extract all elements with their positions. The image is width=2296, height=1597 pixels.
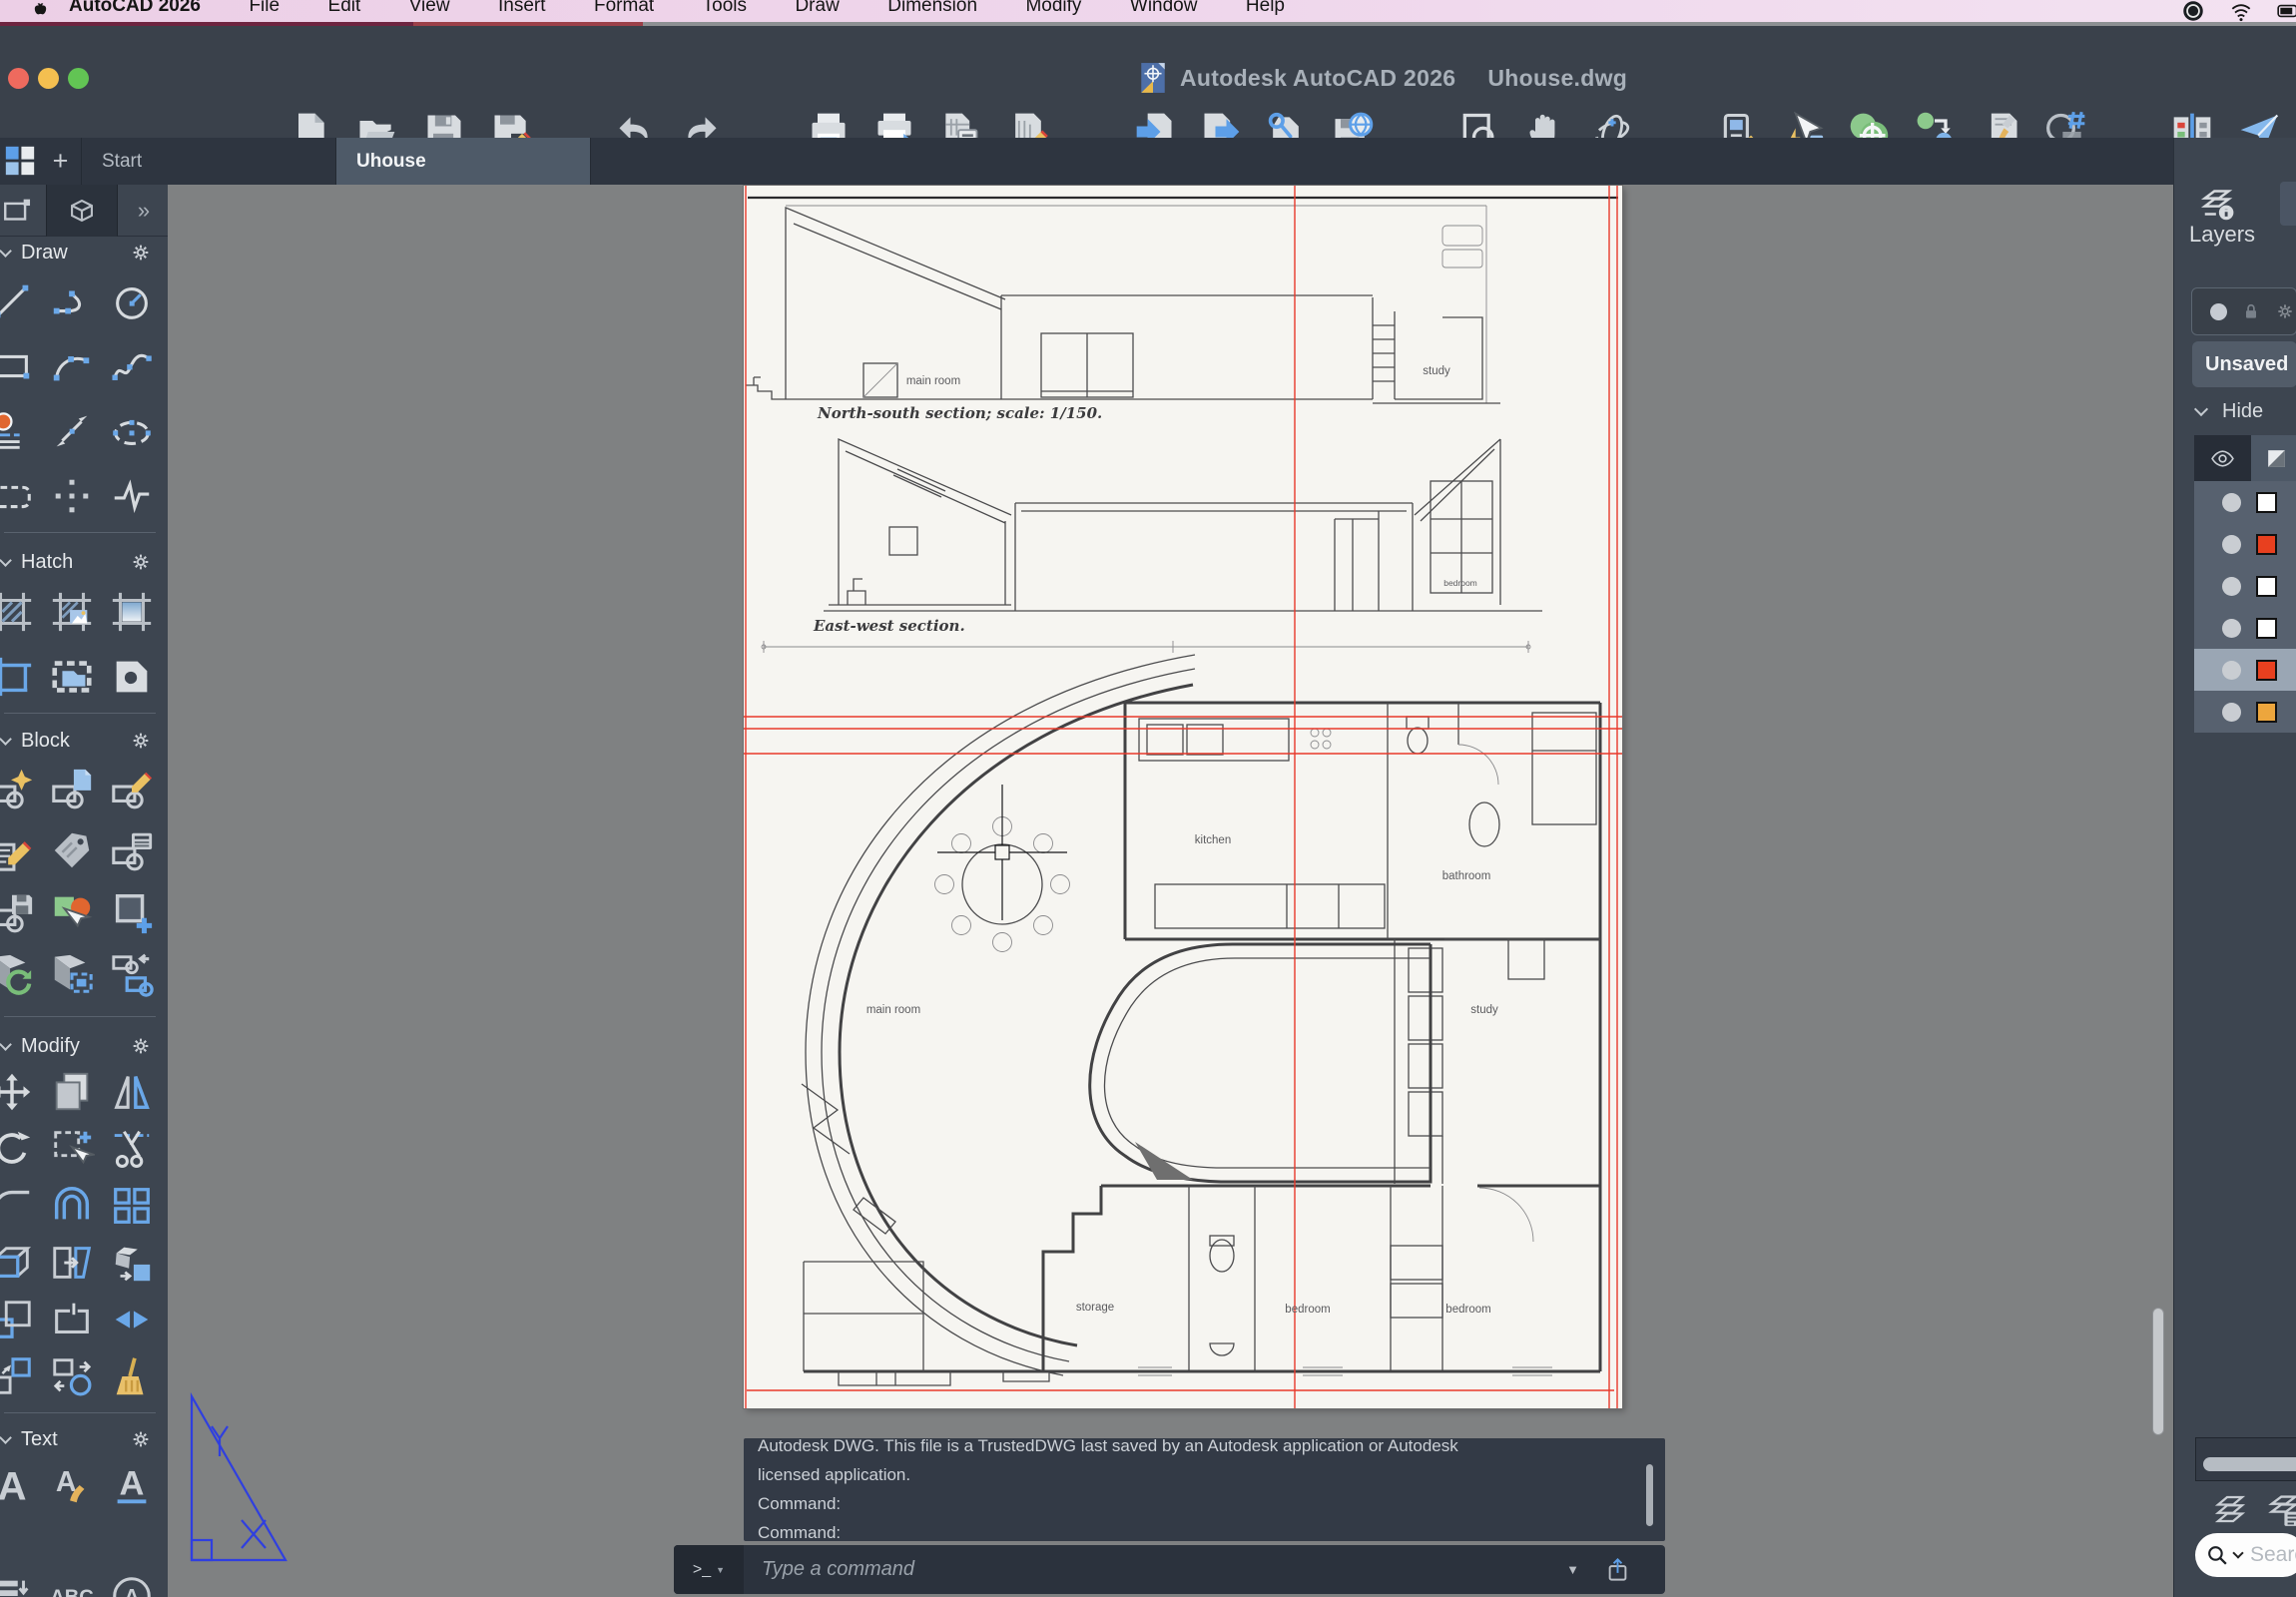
menu-item[interactable]: Help [1224, 0, 1307, 16]
layers-icon [2200, 186, 2238, 224]
layer-color-swatch[interactable] [2256, 702, 2277, 723]
command-line-bar[interactable]: >_ ▼ Type a command ▼ [674, 1545, 1665, 1594]
search-placeholder: Search [2250, 1543, 2296, 1567]
hide-section-toggle[interactable]: Hide [2196, 395, 2263, 427]
room-label: bedroom [1285, 1304, 1330, 1316]
trim-tool[interactable] [109, 1126, 155, 1172]
circle-tool[interactable] [109, 278, 155, 324]
battery-icon[interactable] [2276, 0, 2296, 22]
visibility-column-header[interactable] [2194, 435, 2251, 481]
layers-panel: Layers Unsaved Hide [2173, 138, 2296, 1597]
tool-icon [109, 278, 155, 324]
hatch-edit-tool[interactable] [49, 654, 95, 700]
copy-objects-tool[interactable] [109, 1240, 155, 1286]
tool-icon [109, 1462, 155, 1508]
tool-icon [0, 1462, 35, 1508]
scale-tool[interactable] [0, 1297, 35, 1342]
stretch-tool[interactable] [49, 1126, 95, 1172]
layer-settings-icon[interactable] [2267, 1491, 2296, 1529]
text-circle-tool[interactable] [109, 1573, 155, 1597]
menu-item[interactable]: File [227, 0, 301, 16]
gear-icon[interactable] [130, 551, 152, 573]
tool-icon [109, 1126, 155, 1172]
tool-icon [0, 1297, 35, 1342]
room-label: storage [1076, 1302, 1114, 1314]
close-window-button[interactable] [8, 68, 29, 89]
tool-icon [0, 889, 35, 935]
layer-state-dropdown[interactable]: Unsaved [2192, 341, 2296, 387]
tool-icon [49, 278, 95, 324]
tool-icon [109, 1240, 155, 1286]
chevron-down-icon [2232, 1547, 2243, 1558]
panel-title: Hatch [21, 551, 73, 574]
tool-palette-sidebar: » Draw Hatch Block Mod [0, 185, 168, 1597]
select-objects-tool[interactable] [49, 889, 95, 935]
copy-tool[interactable] [49, 1069, 95, 1115]
room-label: main room [906, 375, 960, 387]
room-label: bedroom [1443, 578, 1477, 588]
menu-item[interactable]: View [387, 0, 472, 16]
insert-block-tool[interactable] [0, 766, 35, 811]
chevron-down-icon [0, 733, 12, 746]
layers-panel-title: Layers [2189, 222, 2255, 248]
hatch-tool[interactable] [0, 589, 35, 635]
layer-row[interactable] [2194, 649, 2296, 691]
panel-divider [4, 532, 156, 533]
app-title: Autodesk AutoCAD 2026 [1180, 65, 1455, 92]
document-title: Uhouse.dwg [1487, 65, 1627, 92]
eye-icon [2210, 446, 2235, 471]
tool-icon [49, 1573, 95, 1597]
room-label: bathroom [1442, 870, 1491, 882]
panel-divider [4, 1412, 156, 1413]
layer-row[interactable] [2194, 481, 2296, 523]
tool-icon [109, 1069, 155, 1115]
command-history-line: Command: [758, 1518, 1651, 1541]
tool-icon [0, 278, 35, 324]
layer-color-swatch[interactable] [2256, 576, 2277, 597]
hatch-panel-header[interactable]: Hatch [0, 547, 168, 577]
tool-icon [49, 343, 95, 389]
layer-visibility-dot[interactable] [2222, 619, 2241, 638]
layer-list [2194, 435, 2296, 733]
revision-cloud-tool[interactable] [0, 473, 35, 519]
purge-tool[interactable] [109, 1353, 155, 1399]
tool-icon [0, 1126, 35, 1172]
prompt-glyph: >_ [693, 1561, 711, 1579]
spline-tool[interactable] [109, 343, 155, 389]
room-label: main room [866, 1004, 920, 1016]
tool-icon [109, 1573, 155, 1597]
layer-visibility-dot[interactable] [2222, 493, 2241, 512]
command-input[interactable]: Type a command [762, 1558, 914, 1581]
zoom-window-button[interactable] [68, 68, 89, 89]
boundary-tool[interactable] [0, 654, 35, 700]
swatch-icon [2264, 446, 2289, 471]
command-history-line: Autodesk DWG. This file is a TrustedDWG … [758, 1438, 1651, 1460]
section-caption: North-south section; scale: 1/150. [818, 404, 1102, 422]
layer-search-box[interactable]: Search [2195, 1533, 2296, 1577]
tool-icon [0, 951, 35, 997]
tool-icon [0, 1573, 35, 1597]
autocad-window: AutoCAD 2026 File Edit View Insert Forma… [0, 0, 2296, 1597]
tab-2d-tools[interactable] [0, 185, 46, 237]
multiline-tool[interactable] [0, 408, 35, 454]
3d-box-tool[interactable] [0, 1240, 35, 1286]
text-list-tool[interactable] [0, 1573, 35, 1597]
gradient-tool[interactable] [109, 589, 155, 635]
wifi-icon[interactable] [2228, 0, 2254, 22]
measure-tool[interactable] [49, 408, 95, 454]
tab-uhouse[interactable]: Uhouse [336, 138, 591, 185]
menu-item[interactable]: Draw [773, 0, 861, 16]
drawing-canvas[interactable]: main room study bedroom kitchen bathroom… [168, 185, 2173, 1597]
tool-icon [109, 473, 155, 519]
layer-visibility-dot[interactable] [2222, 535, 2241, 554]
array-tool[interactable] [109, 1183, 155, 1229]
gear-icon[interactable] [130, 730, 152, 752]
paper-sheet[interactable]: main room study bedroom kitchen bathroom… [744, 186, 1622, 1408]
tool-icon [49, 766, 95, 811]
tool-icon [109, 589, 155, 635]
gear-icon[interactable] [130, 1035, 152, 1057]
convert-tool[interactable] [49, 1353, 95, 1399]
section-caption: East-west section. [814, 617, 965, 635]
new-drawing-tab-button[interactable]: + [40, 138, 82, 185]
menu-item[interactable]: Dimension [865, 0, 999, 16]
block-panel-header[interactable]: Block [0, 726, 168, 756]
layer-filter-toolbar [2191, 287, 2296, 335]
room-label: study [1470, 1004, 1498, 1016]
tool-icon [49, 827, 95, 873]
tool-icon [109, 1297, 155, 1342]
lock-icon[interactable] [2241, 301, 2261, 321]
superhatch-tool[interactable] [49, 589, 95, 635]
color-column-header[interactable] [2251, 435, 2296, 481]
tool-icon [0, 589, 35, 635]
tool-icon [0, 827, 35, 873]
viewport-icon [1, 194, 35, 228]
room-label: bedroom [1445, 1304, 1490, 1316]
command-history-line: Command: [758, 1489, 1651, 1518]
mtext-tool[interactable] [0, 1462, 35, 1508]
chevron-down-icon [0, 554, 12, 567]
room-label: study [1423, 365, 1450, 377]
line-tool[interactable] [0, 278, 35, 324]
tool-icon [49, 589, 95, 635]
macos-menu-bar: AutoCAD 2026 File Edit View Insert Forma… [0, 0, 2296, 22]
tab-start[interactable]: Start [82, 138, 336, 185]
layer-row[interactable] [2194, 607, 2296, 649]
polyline-tool[interactable] [49, 278, 95, 324]
menu-item[interactable]: Window [1108, 0, 1220, 16]
tool-icon [0, 1240, 35, 1286]
tool-icon [49, 1297, 95, 1342]
text-panel-header[interactable]: Text [0, 1424, 168, 1454]
chevron-down-icon [2194, 401, 2208, 415]
cube-icon [65, 194, 99, 228]
edit-attribute-tool[interactable] [0, 827, 35, 873]
minimize-window-button[interactable] [38, 68, 59, 89]
tool-icon [49, 1462, 95, 1508]
panel-edge-tab[interactable] [2280, 182, 2296, 226]
tag-tool[interactable] [49, 827, 95, 873]
spell-check-tool[interactable] [49, 1573, 95, 1597]
swap-block-tool[interactable] [109, 951, 155, 997]
add-selected-tool[interactable] [109, 889, 155, 935]
arc-tool[interactable] [49, 343, 95, 389]
layer-visibility-dot[interactable] [2222, 577, 2241, 596]
rectangle-tool[interactable] [0, 343, 35, 389]
menu-item[interactable]: Format [572, 0, 676, 16]
tool-icon [109, 654, 155, 700]
tool-icon [109, 1183, 155, 1229]
menu-item[interactable]: Edit [306, 0, 383, 16]
draw-panel-header[interactable]: Draw [0, 238, 168, 267]
tool-icon [109, 827, 155, 873]
write-block-tool[interactable] [0, 889, 35, 935]
canvas-vertical-scrollbar[interactable] [2152, 1308, 2164, 1435]
create-block-tool[interactable] [49, 766, 95, 811]
offset-tool[interactable] [49, 1183, 95, 1229]
tool-icon [109, 766, 155, 811]
change-space-tool[interactable] [49, 1240, 95, 1286]
layer-visibility-dot[interactable] [2222, 703, 2241, 722]
hide-label: Hide [2222, 400, 2263, 423]
layer-states-icon[interactable] [2212, 1491, 2248, 1527]
solid-fill-tool[interactable] [109, 654, 155, 700]
history-scrollbar[interactable] [1646, 1464, 1653, 1526]
layer-list-header [2194, 435, 2296, 481]
ucs-icon: Y X [182, 1390, 296, 1568]
freehand-tool[interactable] [109, 473, 155, 519]
tool-icon [49, 1240, 95, 1286]
search-icon [2205, 1543, 2230, 1568]
tool-icon [49, 1353, 95, 1399]
tab-overview-icon[interactable] [3, 144, 37, 178]
layer-row[interactable] [2194, 565, 2296, 607]
tool-icon [0, 1183, 35, 1229]
construction-lines [744, 186, 1622, 1408]
menu-item[interactable]: Modify [1003, 0, 1103, 16]
drawing-tab-bar: + Start Uhouse [0, 138, 2296, 185]
tool-icon [49, 951, 95, 997]
tool-icon [49, 1069, 95, 1115]
autocad-app-icon [1140, 62, 1166, 94]
text-style-tool[interactable] [49, 1462, 95, 1508]
tool-icon [109, 1353, 155, 1399]
layer-status-icon[interactable] [2210, 303, 2227, 320]
menu-item[interactable]: AutoCAD 2026 [65, 0, 223, 16]
tool-icon [109, 408, 155, 454]
tool-icon [49, 1183, 95, 1229]
tool-icon [0, 408, 35, 454]
sidebar-overflow-button[interactable]: » [118, 185, 168, 237]
panel-divider [4, 713, 156, 714]
uhouse-drawing [744, 186, 1622, 1408]
chevron-down-icon: ▼ [716, 1565, 725, 1575]
point-tool[interactable] [49, 473, 95, 519]
layer-panel-scrollbar[interactable] [2195, 1437, 2296, 1481]
menu-item[interactable]: Tools [681, 0, 769, 16]
layer-visibility-dot[interactable] [2222, 661, 2241, 680]
join-tool[interactable] [109, 1297, 155, 1342]
tool-icon [109, 889, 155, 935]
tool-icon [49, 408, 95, 454]
layer-row[interactable] [2194, 691, 2296, 733]
layer-color-swatch[interactable] [2256, 618, 2277, 639]
gear-icon[interactable] [130, 1428, 152, 1450]
command-history-line: licensed application. [758, 1460, 1651, 1489]
room-label: kitchen [1195, 834, 1231, 846]
tool-icon [0, 766, 35, 811]
tool-icon [0, 1353, 35, 1399]
crosshair-cursor [937, 785, 1067, 920]
block-editor-tool[interactable] [109, 766, 155, 811]
tool-icon [49, 654, 95, 700]
ellipse-tool[interactable] [109, 408, 155, 454]
tool-icon [109, 343, 155, 389]
panel-title: Modify [21, 1035, 80, 1058]
north-south-section [746, 206, 1500, 403]
recent-commands-button[interactable]: ▼ [1566, 1562, 1579, 1577]
fillet-tool[interactable] [0, 1183, 35, 1229]
chevron-down-icon [0, 1431, 12, 1444]
tool-icon [0, 343, 35, 389]
tool-icon [0, 1069, 35, 1115]
layer-color-swatch[interactable] [2256, 492, 2277, 513]
modify-panel-header[interactable]: Modify [0, 1031, 168, 1061]
panel-title: Block [21, 730, 70, 753]
panel-title: Text [21, 1428, 58, 1451]
layer-row[interactable] [2194, 523, 2296, 565]
command-history-panel[interactable]: Autodesk DWG. This file is a TrustedDWG … [744, 1438, 1665, 1541]
mirror-tool[interactable] [109, 1069, 155, 1115]
panel-title: Draw [21, 242, 68, 265]
title-bar: Autodesk AutoCAD 2026 Uhouse.dwg [0, 26, 2296, 138]
text-underline-tool[interactable] [109, 1462, 155, 1508]
share-icon[interactable] [1604, 1556, 1631, 1583]
tool-icon [109, 951, 155, 997]
menu-item[interactable]: Insert [476, 0, 568, 16]
rotate-tool[interactable] [0, 1126, 35, 1172]
sync-attributes-tool[interactable] [0, 951, 35, 997]
east-west-section [824, 439, 1542, 611]
layer-color-swatch[interactable] [2256, 534, 2277, 555]
move-tool[interactable] [0, 1069, 35, 1115]
tab-3d-tools[interactable] [46, 185, 118, 237]
chevron-down-icon [0, 245, 12, 258]
tool-icon [0, 654, 35, 700]
align-tool[interactable] [0, 1353, 35, 1399]
tool-icon [49, 889, 95, 935]
gear-icon[interactable] [130, 242, 152, 264]
chevron-down-icon [0, 1038, 12, 1051]
layer-color-swatch[interactable] [2256, 660, 2277, 681]
panel-divider [4, 1016, 156, 1017]
tool-icon [0, 473, 35, 519]
tool-icon [49, 1126, 95, 1172]
replace-block-tool[interactable] [49, 951, 95, 997]
command-prompt-button[interactable]: >_ ▼ [674, 1545, 744, 1594]
screen-record-icon[interactable] [2180, 0, 2206, 22]
attribute-manager-tool[interactable] [109, 827, 155, 873]
tool-icon [49, 473, 95, 519]
break-tool[interactable] [49, 1297, 95, 1342]
gear-icon[interactable] [2275, 301, 2295, 321]
apple-menu-icon[interactable] [32, 0, 49, 18]
